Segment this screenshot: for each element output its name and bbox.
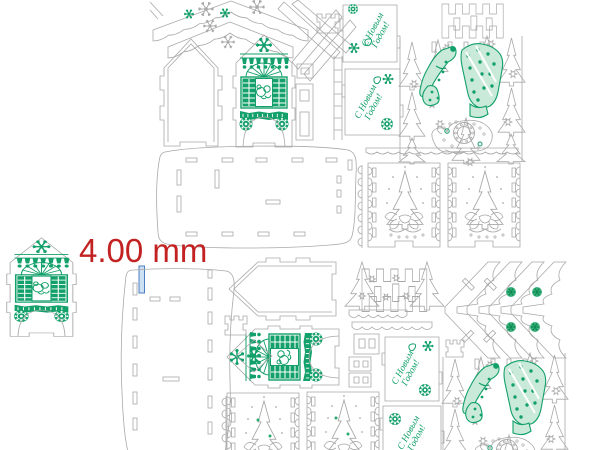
svg-text:4.00 mm: 4.00 mm [79, 232, 207, 269]
